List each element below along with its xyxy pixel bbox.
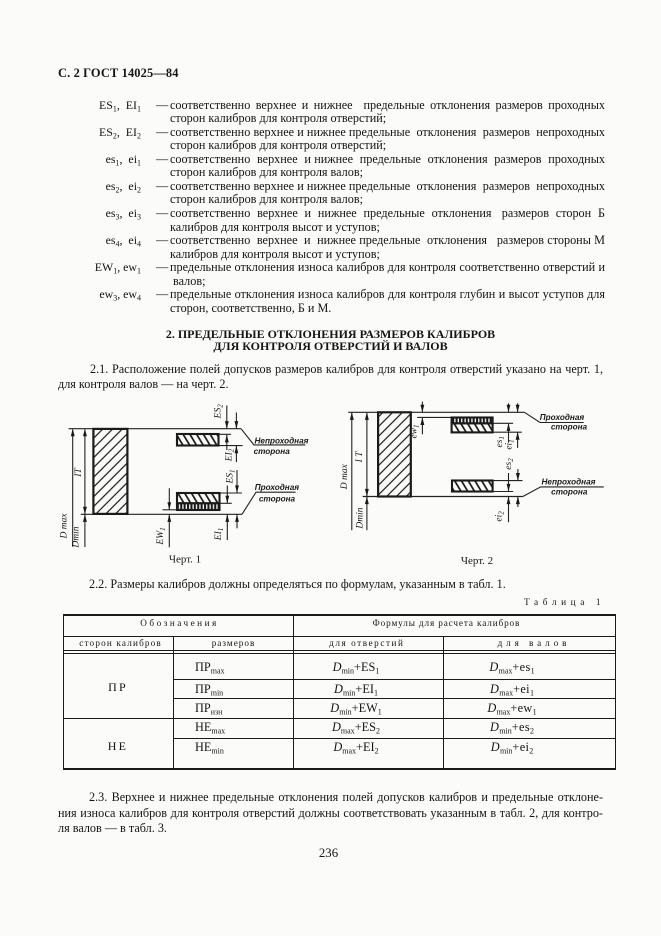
- svg-text:Непроходная: Непроходная: [542, 478, 596, 487]
- svg-text:сторона: сторона: [254, 447, 291, 456]
- svg-text:Dmin: Dmin: [355, 507, 365, 529]
- svg-text:IT: IT: [74, 468, 84, 478]
- svg-text:Черт. 1: Черт. 1: [169, 554, 201, 566]
- svg-text:Dmin: Dmin: [71, 526, 81, 548]
- svg-text:ES1: ES1: [225, 469, 236, 484]
- svg-text:D max: D max: [340, 463, 350, 490]
- svg-text:Черт. 2: Черт. 2: [461, 555, 493, 567]
- svg-text:EW1: EW1: [156, 527, 167, 545]
- svg-text:EI1: EI1: [214, 528, 225, 541]
- svg-text:ei2: ei2: [495, 511, 506, 522]
- svg-text:сторона: сторона: [551, 422, 588, 431]
- svg-text:сторона: сторона: [259, 495, 296, 504]
- svg-text:Проходная: Проходная: [255, 483, 300, 492]
- svg-text:EI2: EI2: [224, 448, 235, 462]
- svg-text:Непроходная: Непроходная: [255, 436, 309, 445]
- svg-text:I T: I T: [355, 451, 365, 464]
- svg-text:es2: es2: [504, 458, 515, 470]
- svg-text:ei1: ei1: [505, 439, 516, 449]
- svg-text:сторона: сторона: [551, 488, 588, 497]
- svg-text:Проходная: Проходная: [540, 413, 585, 422]
- svg-text:D max: D max: [60, 513, 70, 540]
- svg-text:ES2: ES2: [214, 404, 225, 420]
